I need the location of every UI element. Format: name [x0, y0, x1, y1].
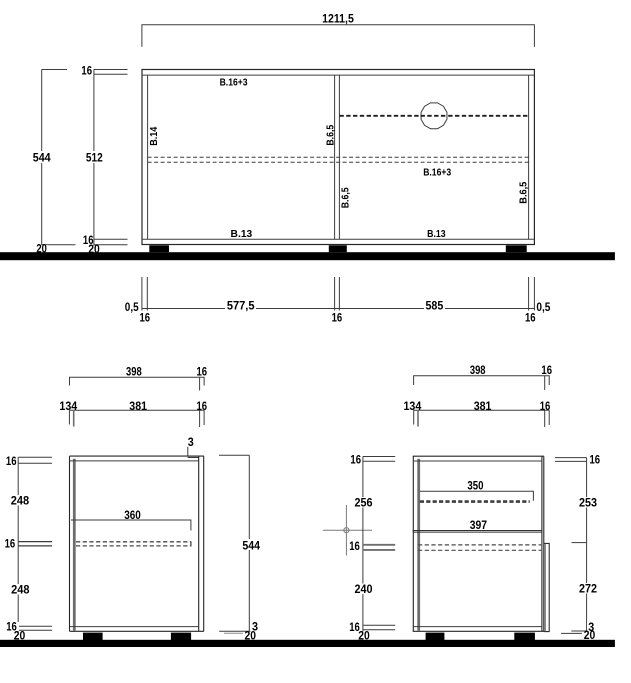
svg-text:16: 16 [140, 311, 151, 325]
svg-text:544: 544 [33, 151, 51, 165]
svg-text:B.13: B.13 [231, 229, 253, 240]
svg-text:398: 398 [470, 363, 486, 377]
svg-text:16: 16 [350, 452, 361, 466]
svg-text:16: 16 [349, 539, 360, 553]
svg-text:16: 16 [541, 363, 552, 377]
svg-text:B.6,5: B.6,5 [341, 187, 352, 208]
svg-text:577,5: 577,5 [227, 299, 255, 313]
svg-text:16: 16 [590, 452, 601, 466]
svg-text:272: 272 [579, 582, 597, 596]
svg-text:16: 16 [81, 64, 92, 78]
svg-text:398: 398 [126, 365, 142, 379]
svg-text:544: 544 [242, 538, 260, 552]
svg-text:16: 16 [525, 311, 536, 325]
svg-text:B.14: B.14 [149, 126, 160, 145]
svg-text:16: 16 [5, 536, 16, 550]
svg-text:134: 134 [404, 399, 422, 413]
svg-text:240: 240 [355, 582, 373, 596]
svg-text:248: 248 [11, 493, 30, 507]
svg-text:256: 256 [355, 495, 373, 509]
svg-text:B.6,5: B.6,5 [326, 124, 337, 145]
svg-text:B.6,5: B.6,5 [519, 181, 530, 203]
svg-text:B.13: B.13 [427, 229, 446, 240]
svg-text:253: 253 [579, 495, 597, 509]
svg-text:16: 16 [540, 399, 551, 413]
svg-text:3: 3 [188, 435, 194, 449]
svg-text:16: 16 [197, 365, 208, 379]
svg-text:585: 585 [426, 299, 444, 313]
svg-text:360: 360 [124, 508, 141, 522]
svg-text:381: 381 [129, 399, 147, 413]
svg-text:16: 16 [197, 399, 208, 413]
svg-text:350: 350 [467, 479, 483, 493]
svg-text:16: 16 [332, 311, 343, 325]
svg-text:512: 512 [86, 151, 103, 165]
svg-text:1211,5: 1211,5 [322, 12, 354, 26]
svg-text:248: 248 [11, 583, 30, 597]
svg-text:B.16+3: B.16+3 [220, 77, 248, 88]
svg-text:B.16+3: B.16+3 [423, 168, 451, 179]
svg-text:397: 397 [470, 518, 488, 532]
svg-text:134: 134 [59, 399, 77, 413]
svg-text:16: 16 [6, 454, 17, 468]
svg-text:0,5: 0,5 [125, 300, 139, 314]
svg-text:381: 381 [474, 399, 492, 413]
svg-text:20: 20 [584, 628, 596, 642]
svg-text:0,5: 0,5 [536, 300, 550, 314]
